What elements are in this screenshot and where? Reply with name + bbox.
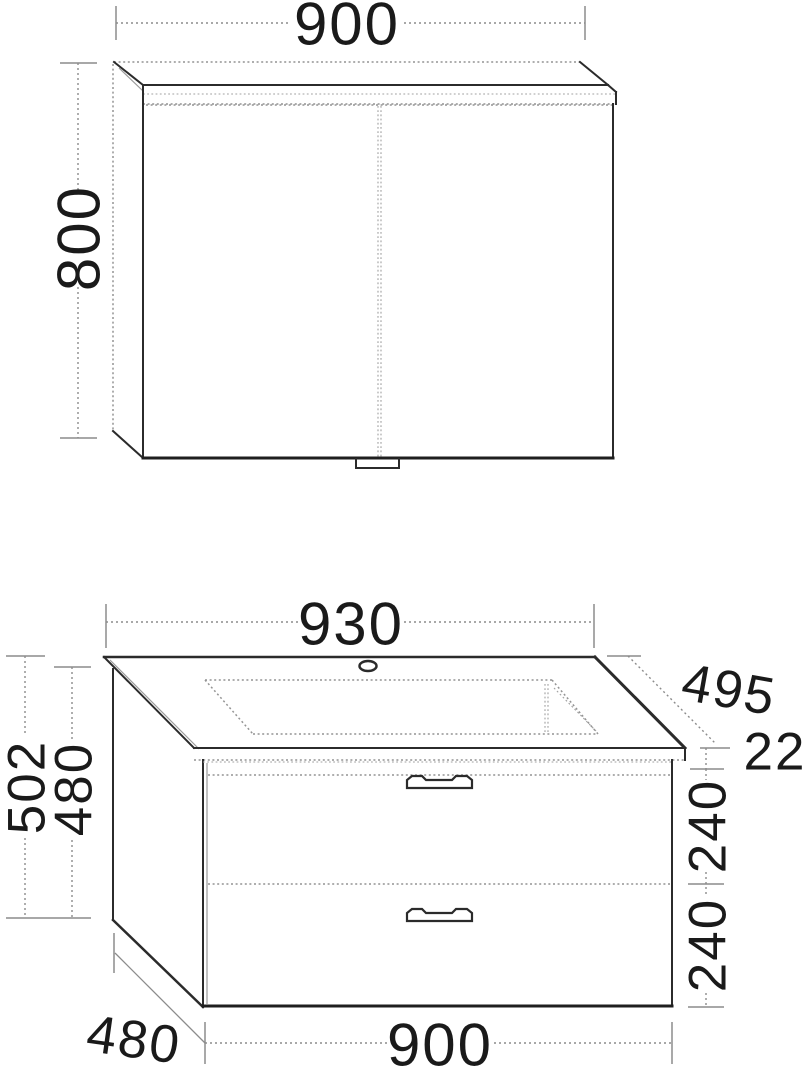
dim-vanity-heights: 502 480 — [0, 656, 104, 918]
tap-hole — [360, 661, 377, 671]
mirror-cabinet-body — [113, 64, 613, 468]
technical-drawing: 900 800 — [0, 0, 807, 1080]
dim-basin-width: 930 — [106, 591, 594, 658]
dim-basin-width-label: 930 — [298, 591, 404, 658]
dim-basin-thickness-label: 22 — [744, 723, 807, 782]
drawer2-handle — [407, 909, 472, 921]
dim-mirror-height: 800 — [46, 63, 113, 438]
dim-carcass-width: 900 — [205, 1012, 672, 1079]
dim-drawer2-height-label: 240 — [679, 898, 738, 992]
dim-carcass-height-label: 480 — [45, 742, 104, 836]
dim-drawer-heights: 240 240 — [679, 769, 738, 1007]
vanity-carcass — [113, 669, 672, 1007]
vanity-drawing: 930 — [0, 591, 806, 1079]
dim-carcass-width-label: 900 — [387, 1012, 493, 1079]
technical-drawing-page: 900 800 — [0, 0, 807, 1080]
drawer1-handle — [407, 776, 472, 788]
dim-mirror-width: 900 — [116, 0, 585, 58]
mirror-cabinet-canopy — [114, 62, 616, 104]
washbasin-top — [104, 657, 685, 760]
dim-mirror-width-label: 900 — [294, 0, 400, 58]
dim-carcass-depth-label: 480 — [83, 1004, 185, 1076]
dim-drawer1-height-label: 240 — [679, 779, 738, 873]
dim-basin-depth-label: 495 — [677, 653, 780, 728]
basin-bowl — [205, 680, 598, 734]
dim-carcass-depth: 480 — [83, 933, 205, 1076]
dim-basin-thickness: 22 — [690, 723, 806, 782]
mirror-cabinet-latch — [356, 459, 399, 468]
mirror-cabinet-drawing: 900 800 — [46, 0, 617, 468]
dim-mirror-height-label: 800 — [46, 185, 113, 291]
